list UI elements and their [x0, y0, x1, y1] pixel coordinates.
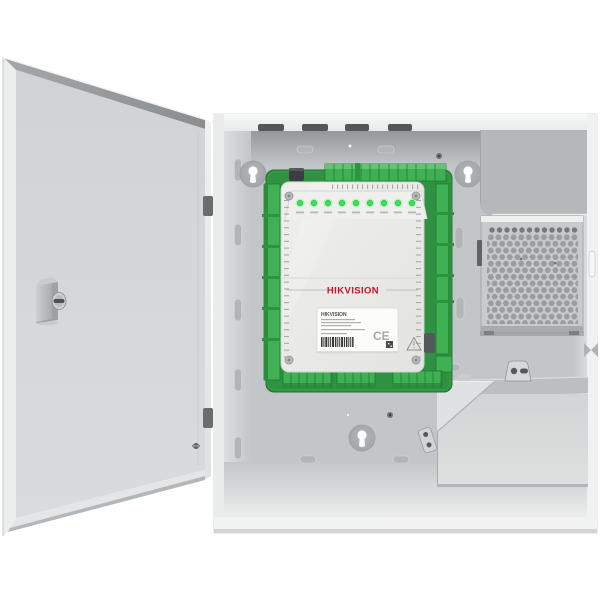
- status-led: [367, 200, 373, 206]
- inner-left-wall: [223, 130, 251, 520]
- panel-knockout: [455, 227, 463, 249]
- led-label: [408, 212, 416, 214]
- panel-knockout: [378, 146, 394, 153]
- status-led: [409, 200, 415, 206]
- status-led: [311, 200, 317, 206]
- psu-screw: [520, 258, 523, 261]
- terminal-blocks-left: [262, 184, 282, 380]
- led-label: [352, 212, 360, 214]
- mounting-keyhole: [455, 161, 481, 187]
- wall-knockout: [235, 437, 242, 459]
- battery-tray: [437, 374, 588, 487]
- datamatrix-code: [386, 341, 393, 348]
- tray-tab: [457, 374, 471, 382]
- power-supply-unit: [477, 216, 584, 336]
- access-controller-board: HIKVISION HIKVISION CE: [262, 163, 454, 392]
- scene: HIKVISION HIKVISION CE: [0, 0, 600, 600]
- small-hole: [346, 413, 350, 417]
- right-wall-slot: [589, 251, 595, 277]
- label-title: HIKVISION: [321, 312, 347, 318]
- led-label: [324, 212, 332, 214]
- panel-knockout: [456, 297, 464, 319]
- psu-vent-hole: [512, 227, 517, 232]
- psu-mounting-plate: [480, 130, 587, 215]
- wall-knockout: [235, 299, 242, 321]
- hinge-top: [203, 196, 213, 216]
- door-left-edge: [3, 57, 16, 536]
- led-label: [310, 212, 318, 214]
- front-rim-bottom: [214, 517, 597, 530]
- psu-vent-hole: [504, 227, 509, 232]
- psu-vent-grille: [487, 234, 578, 324]
- psu-vent-hole: [534, 227, 539, 232]
- buzzer-component: [289, 168, 304, 181]
- psu-vent-hole: [542, 227, 547, 232]
- status-led: [297, 200, 303, 206]
- psu-vent-hole: [564, 227, 569, 232]
- psu-vent-hole: [549, 227, 554, 232]
- led-label: [338, 212, 346, 214]
- front-rim-right: [587, 114, 597, 533]
- bottom-outer-edge: [214, 529, 597, 533]
- hinge-bottom: [203, 408, 213, 428]
- product-image-access-control-enclosure: HIKVISION HIKVISION CE: [0, 0, 600, 600]
- product-label-sticker: HIKVISION CE: [317, 308, 398, 353]
- wall-knockout: [235, 224, 242, 246]
- led-label: [394, 212, 402, 214]
- psu-foot: [569, 331, 579, 335]
- front-rim-left: [214, 114, 224, 533]
- hikvision-logo: HIKVISION: [327, 286, 379, 297]
- board-cover-plate: HIKVISION HIKVISION CE: [281, 182, 427, 372]
- status-led: [325, 200, 331, 206]
- enclosure-door: [3, 57, 211, 536]
- panel-knockout: [393, 456, 409, 463]
- terminal-blocks-bottom: [283, 371, 442, 387]
- small-hole: [348, 144, 352, 148]
- mounting-keyhole: [349, 425, 375, 451]
- led-label: [296, 212, 304, 214]
- panel-screw: [436, 153, 442, 159]
- status-led: [395, 200, 401, 206]
- terminal-blocks-right: [434, 184, 454, 372]
- status-led: [339, 200, 345, 206]
- psu-vent-hole: [572, 227, 577, 232]
- panel-knockout: [297, 146, 313, 153]
- psu-top-lip: [481, 216, 583, 222]
- psu-vent-hole: [519, 227, 524, 232]
- led-label: [366, 212, 374, 214]
- status-led: [353, 200, 359, 206]
- terminal-blocks-top: [325, 163, 446, 182]
- tray-bottom-edge: [437, 484, 588, 487]
- panel-knockout: [300, 456, 316, 463]
- barcode: [321, 337, 354, 347]
- psu-vent-hole: [489, 227, 494, 232]
- psu-vent-hole: [527, 227, 532, 232]
- psu-side-slot: [477, 240, 482, 266]
- cover-screw: [285, 192, 293, 200]
- ce-mark: CE: [373, 329, 390, 343]
- psu-screw: [554, 262, 557, 265]
- mounting-keyhole: [240, 161, 266, 187]
- psu-vent-hole: [557, 227, 562, 232]
- tamper-bracket: [505, 361, 531, 381]
- panel-screw: [387, 412, 393, 418]
- led-label: [380, 212, 388, 214]
- psu-vent-hole: [497, 227, 502, 232]
- wall-knockout: [235, 369, 242, 391]
- status-led: [381, 200, 387, 206]
- keyway-slot: [54, 299, 65, 303]
- switch-component: [424, 333, 435, 353]
- psu-foot: [484, 331, 494, 335]
- psu-bottom-lip: [481, 326, 583, 332]
